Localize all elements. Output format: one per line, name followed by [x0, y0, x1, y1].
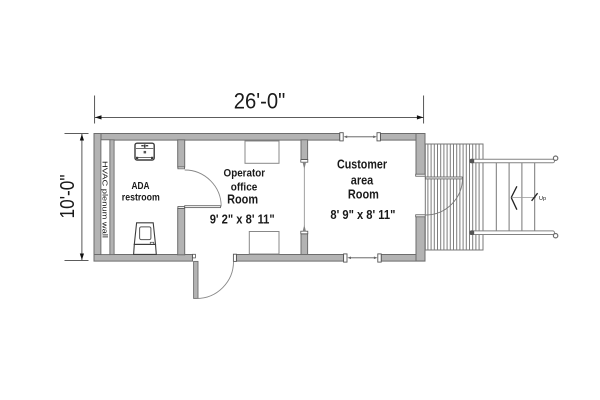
svg-text:area: area	[351, 174, 374, 188]
svg-text:9' 2" x 8' 11": 9' 2" x 8' 11"	[210, 211, 275, 226]
svg-text:Room: Room	[348, 188, 379, 202]
svg-text:restroom: restroom	[122, 191, 160, 203]
svg-text:10'-0": 10'-0"	[56, 175, 79, 219]
svg-text:Operator: Operator	[224, 168, 266, 180]
svg-text:Room: Room	[227, 193, 258, 207]
svg-text:Up: Up	[539, 196, 546, 202]
svg-text:ADA: ADA	[132, 180, 150, 192]
svg-text:26'-0": 26'-0"	[234, 89, 286, 114]
svg-text:8' 9" x 8' 11": 8' 9" x 8' 11"	[330, 207, 395, 222]
svg-text:HVAC plenum wall: HVAC plenum wall	[101, 161, 110, 238]
svg-text:Customer: Customer	[337, 158, 387, 172]
